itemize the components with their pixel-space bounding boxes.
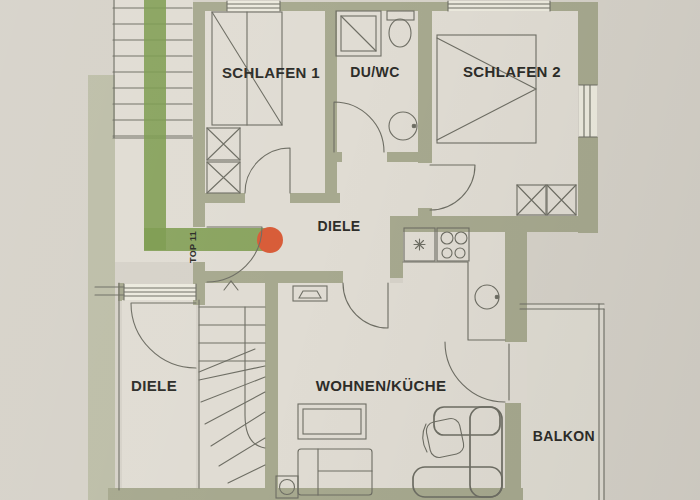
staircase-lower-floor bbox=[199, 283, 265, 488]
unit-number-label: TOP 11 bbox=[188, 231, 198, 263]
room-label-schlafen1: SCHLAFEN 1 bbox=[222, 64, 320, 81]
room-label-diele-lower: DIELE bbox=[131, 377, 177, 394]
kitchen-floor bbox=[403, 232, 505, 283]
floor-plan-photo: SCHLAFEN 1 DU/WC SCHLAFEN 2 DIELE DIELE … bbox=[0, 0, 700, 500]
room-label-duwc: DU/WC bbox=[350, 64, 399, 80]
diele-lower-floor bbox=[122, 300, 196, 488]
room-label-balkon: BALKON bbox=[533, 428, 595, 444]
duwc-floor bbox=[337, 11, 418, 152]
room-label-diele-upper: DIELE bbox=[317, 218, 360, 234]
balcony-floor bbox=[521, 304, 604, 500]
room-label-schlafen2: SCHLAFEN 2 bbox=[463, 63, 561, 80]
window-schlafen2-top bbox=[448, 1, 550, 11]
window-schlafen1 bbox=[227, 1, 280, 11]
window-schlafen2-east bbox=[579, 85, 597, 137]
schlafen1-floor bbox=[205, 11, 325, 193]
room-label-wohnen: WOHNEN/KÜCHE bbox=[316, 377, 447, 394]
